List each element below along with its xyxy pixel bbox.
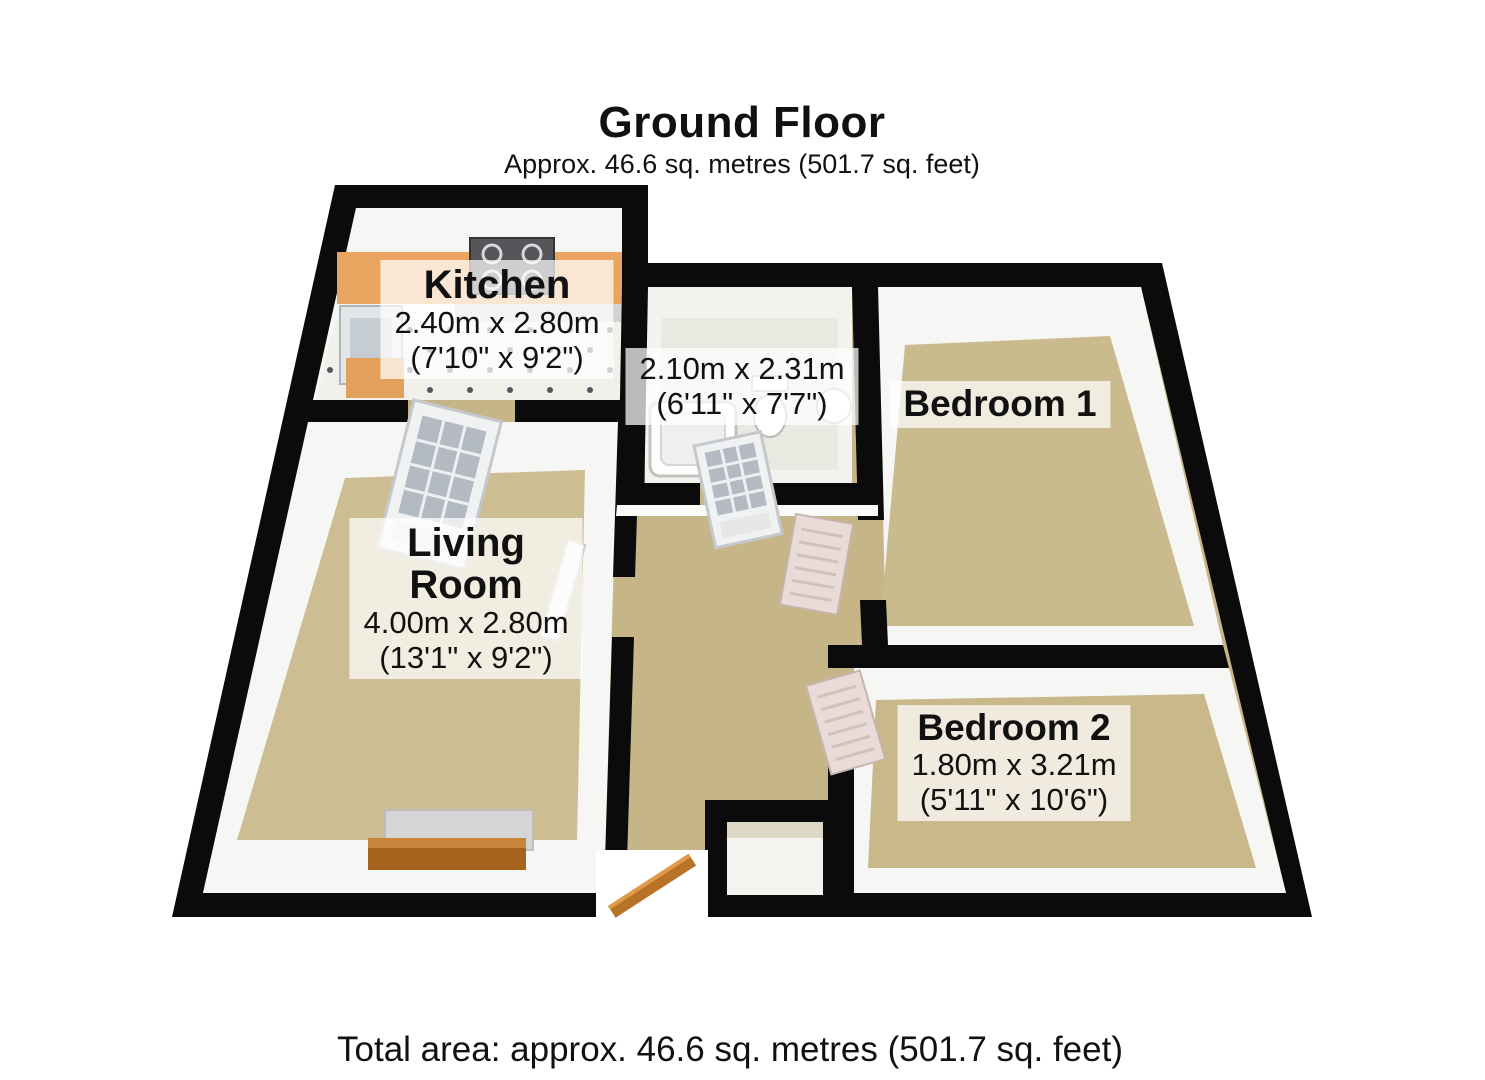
living-room-dims-imperial: (13'1" x 9'2") <box>363 641 568 676</box>
kitchen-label: Kitchen 2.40m x 2.80m (7'10" x 9'2") <box>380 260 613 379</box>
bedroom2-name: Bedroom 2 <box>911 709 1116 748</box>
bedroom1-name: Bedroom 1 <box>903 385 1096 424</box>
bedroom2-label: Bedroom 2 1.80m x 3.21m (5'11" x 10'6") <box>897 705 1130 821</box>
kitchen-dims-metric: 2.40m x 2.80m <box>394 306 599 341</box>
bedroom2-dims-metric: 1.80m x 3.21m <box>911 748 1116 783</box>
page-subtitle: Approx. 46.6 sq. metres (501.7 sq. feet) <box>504 149 980 180</box>
bedroom1-label: Bedroom 1 <box>889 381 1110 428</box>
bench-wood-top <box>368 838 526 848</box>
living-room-name-line1: Living <box>363 522 568 564</box>
bathroom-dims-metric: 2.10m x 2.31m <box>639 352 844 387</box>
living-room-name-line2: Room <box>363 564 568 606</box>
floor-plan-page: Ground Floor Approx. 46.6 sq. metres (50… <box>0 0 1485 1080</box>
closet-floor <box>727 822 823 838</box>
living-room-dims-metric: 4.00m x 2.80m <box>363 606 568 641</box>
bathroom-label: 2.10m x 2.31m (6'11" x 7'7") <box>625 348 858 425</box>
page-title: Ground Floor <box>598 98 885 148</box>
living-room-label: Living Room 4.00m x 2.80m (13'1" x 9'2") <box>349 518 582 679</box>
total-area-text: Total area: approx. 46.6 sq. metres (501… <box>337 1030 1123 1070</box>
kitchen-name: Kitchen <box>394 264 599 306</box>
kitchen-dims-imperial: (7'10" x 9'2") <box>394 341 599 376</box>
bathroom-dims-imperial: (6'11" x 7'7") <box>639 387 844 422</box>
bedroom2-dims-imperial: (5'11" x 10'6") <box>911 783 1116 818</box>
